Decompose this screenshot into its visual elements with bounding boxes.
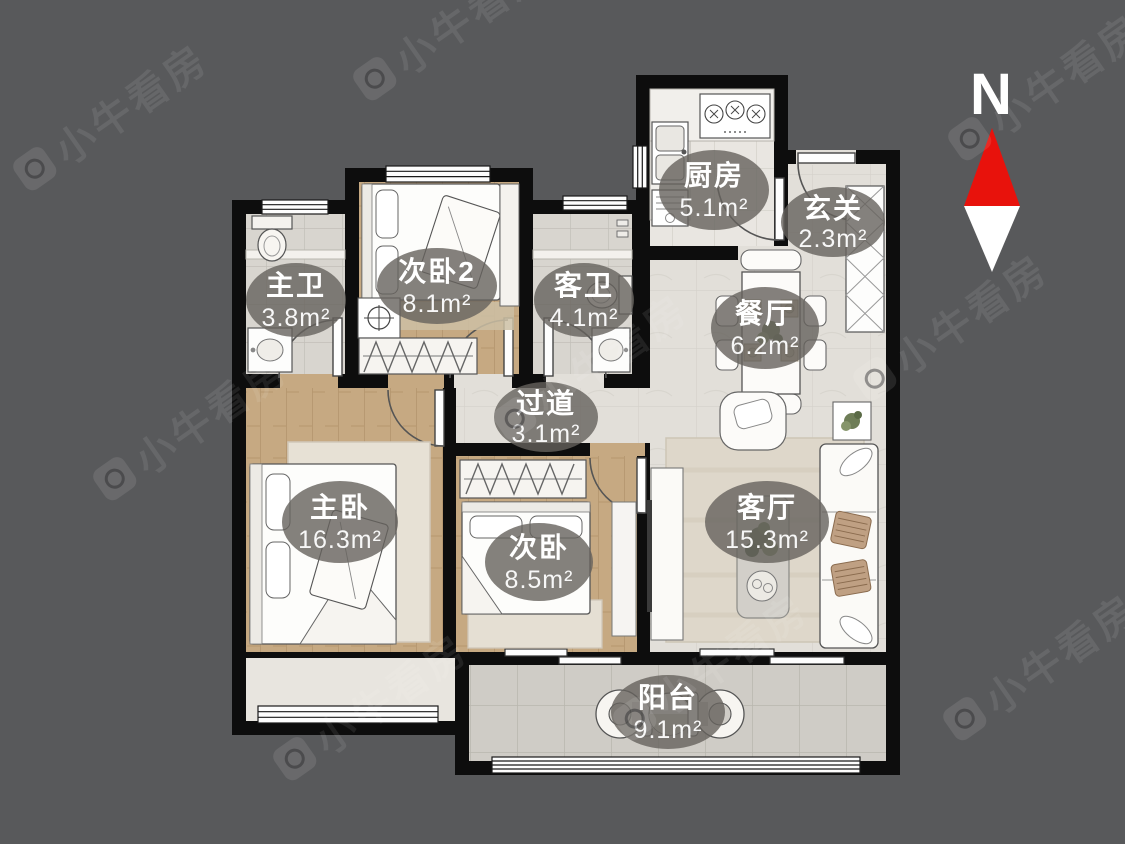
room-label-entry: 玄关 2.3m² (781, 187, 885, 257)
stove-icon (700, 94, 770, 138)
shower-curb (533, 250, 632, 259)
window-balcony (492, 757, 860, 773)
room-area: 9.1m² (634, 716, 703, 744)
room-name: 餐厅 (735, 298, 795, 329)
room-label-master-bedroom: 主卧 16.3m² (282, 481, 398, 563)
wardrobe-side (500, 184, 519, 306)
window-bay (258, 706, 438, 723)
room-area: 8.1m² (403, 290, 472, 318)
room-area: 5.1m² (680, 194, 749, 222)
room-label-bedroom: 次卧 8.5m² (485, 523, 593, 601)
compass-south-arrow (964, 206, 1020, 272)
room-name: 阳台 (638, 681, 698, 713)
pillow (376, 190, 398, 238)
desk (612, 502, 636, 636)
room-name: 主卧 (310, 492, 370, 523)
window-master-bath (262, 200, 328, 214)
window-bedroom2 (386, 166, 490, 182)
room-label-guest-bath: 客卫 4.1m² (534, 263, 634, 337)
room-name: 主卫 (266, 270, 326, 301)
room-area: 15.3m² (725, 526, 809, 554)
room-label-balcony: 阳台 9.1m² (611, 675, 725, 749)
tv-icon (647, 500, 652, 612)
armchair (720, 392, 786, 450)
side-table (833, 402, 871, 440)
room-area: 16.3m² (298, 526, 382, 554)
room-area: 6.2m² (731, 332, 800, 360)
wardrobe (359, 338, 477, 374)
compass-north-label: N (970, 62, 1012, 127)
room-area: 3.8m² (262, 304, 331, 332)
window-kitchen (633, 146, 647, 188)
room-name: 次卧2 (398, 256, 476, 287)
window-guest-bath (563, 196, 627, 210)
room-label-hallway: 过道 3.1m² (494, 382, 598, 452)
dining-chair (741, 250, 801, 270)
room-label-living: 客厅 15.3m² (705, 481, 829, 563)
room-name: 过道 (516, 387, 576, 419)
sofa (820, 443, 878, 649)
room-area: 4.1m² (550, 304, 619, 332)
compass-north-arrow (964, 128, 1020, 206)
floor-plan-svg: 主卫 3.8m² 次卧2 8.1m² 客卫 4.1m² 厨房 5.1m² 玄关 … (0, 0, 1125, 844)
room-area: 2.3m² (799, 225, 868, 253)
room-name: 玄关 (803, 192, 863, 224)
room-label-dining: 餐厅 6.2m² (711, 287, 819, 369)
room-area: 8.5m² (505, 566, 574, 594)
room-area: 3.1m² (512, 420, 581, 448)
room-label-bedroom2: 次卧2 8.1m² (377, 248, 497, 324)
sofa-cushion (830, 559, 871, 597)
room-label-master-bath: 主卫 3.8m² (246, 263, 346, 337)
room-name: 客卫 (554, 269, 614, 301)
room-name: 厨房 (684, 159, 744, 191)
floor-plan-page: 主卫 3.8m² 次卧2 8.1m² 客卫 4.1m² 厨房 5.1m² 玄关 … (0, 0, 1125, 844)
pillow (266, 542, 290, 598)
room-name: 客厅 (737, 491, 797, 523)
compass: N (964, 62, 1020, 272)
tv-cabinet (647, 468, 683, 640)
room-name: 次卧 (509, 532, 569, 563)
room-label-kitchen: 厨房 5.1m² (659, 150, 769, 230)
wardrobe (460, 460, 586, 498)
